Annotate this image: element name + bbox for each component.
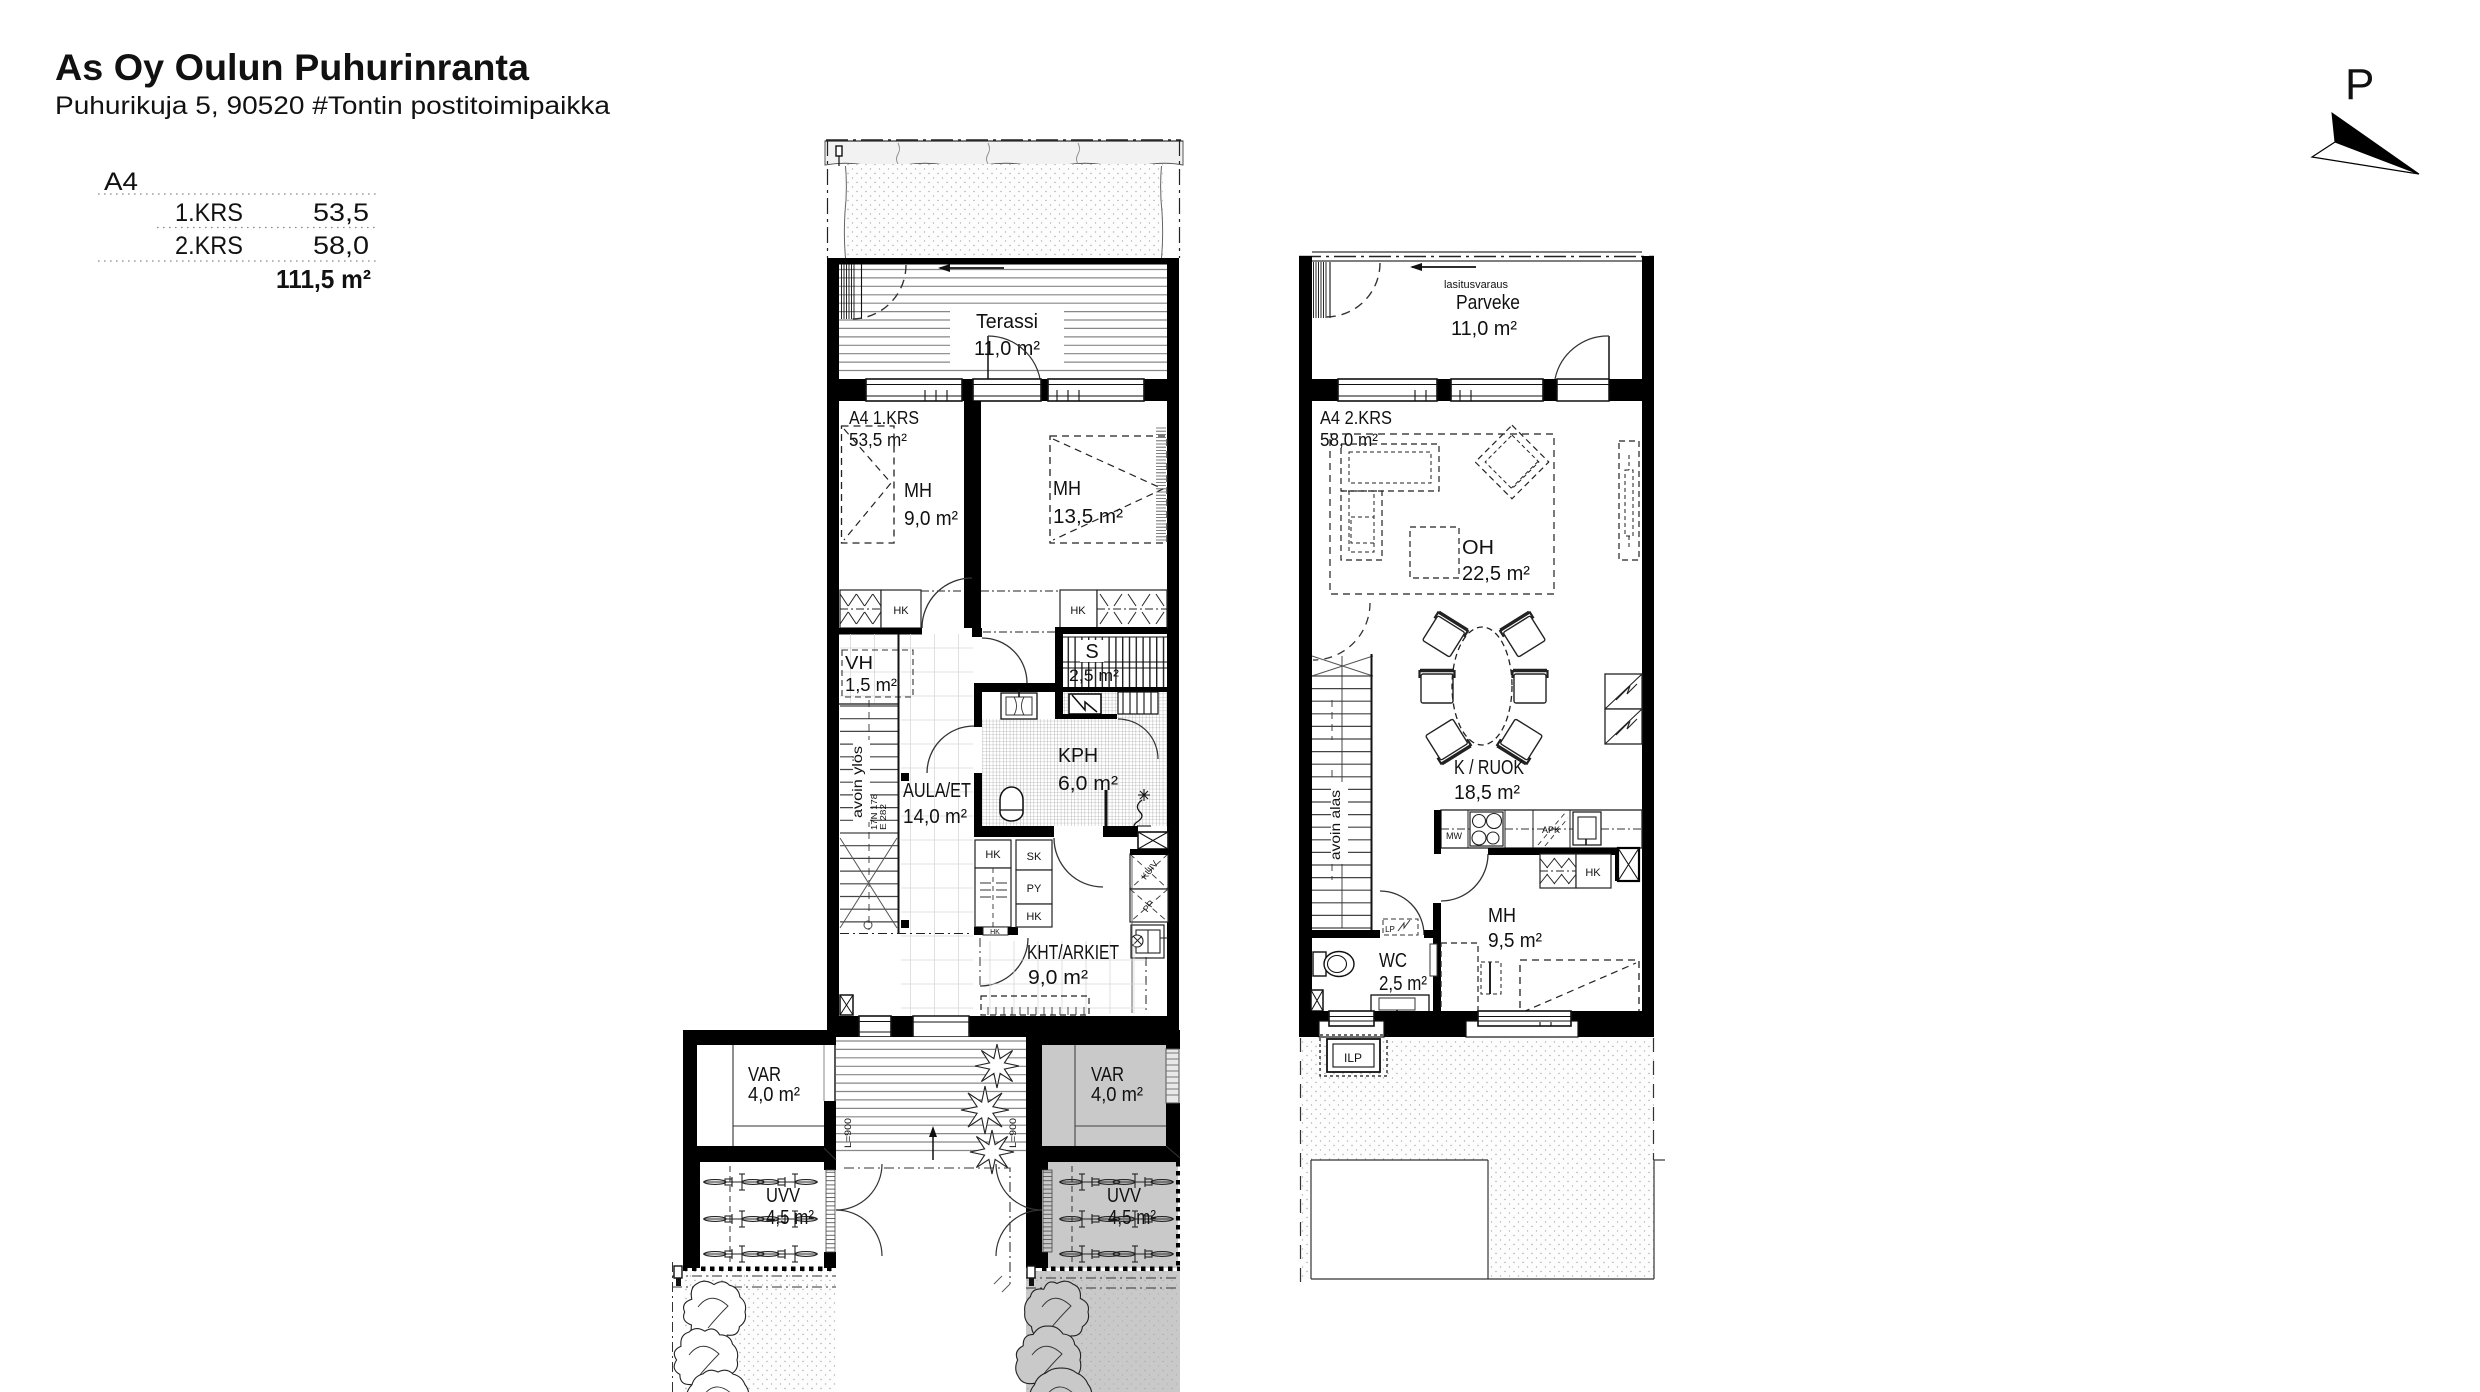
svg-text:PY: PY (1027, 883, 1042, 895)
svg-text:HK: HK (1585, 867, 1601, 879)
svg-text:13,5 m²: 13,5 m² (1053, 506, 1123, 528)
svg-text:L=900: L=900 (1008, 1118, 1018, 1148)
svg-text:2,5 m²: 2,5 m² (1379, 973, 1427, 995)
svg-text:4,5 m²: 4,5 m² (766, 1207, 814, 1229)
svg-text:1.KRS: 1.KRS (175, 199, 243, 227)
svg-text:6,0 m²: 6,0 m² (1058, 773, 1118, 795)
svg-text:LP: LP (1385, 925, 1395, 934)
svg-text:OH: OH (1462, 537, 1494, 559)
svg-text:MW: MW (1446, 831, 1462, 841)
svg-text:KPH: KPH (1058, 745, 1098, 767)
svg-text:L=900: L=900 (843, 1118, 853, 1148)
svg-text:As Oy Oulun Puhurinranta: As Oy Oulun Puhurinranta (55, 47, 529, 88)
svg-text:MH: MH (1488, 905, 1516, 927)
svg-text:18,5 m²: 18,5 m² (1454, 782, 1520, 804)
svg-text:11,0 m²: 11,0 m² (1451, 318, 1517, 340)
svg-text:Parveke: Parveke (1456, 292, 1520, 314)
svg-text:58,0 m²: 58,0 m² (1320, 430, 1378, 450)
svg-text:HK: HK (893, 605, 909, 617)
svg-text:VH: VH (845, 653, 873, 673)
svg-text:APK: APK (1542, 825, 1560, 835)
svg-text:A4 2.KRS: A4 2.KRS (1320, 408, 1392, 428)
svg-text:4,5 m²: 4,5 m² (1108, 1207, 1156, 1229)
svg-text:K / RUOK: K / RUOK (1454, 757, 1525, 779)
svg-text:E 282: E 282 (878, 804, 888, 830)
svg-text:KHT/ARKIET: KHT/ARKIET (1027, 942, 1119, 964)
svg-text:1,5 m²: 1,5 m² (845, 675, 897, 695)
svg-text:P: P (2345, 60, 2374, 109)
svg-text:HK: HK (1070, 605, 1086, 617)
svg-text:Puhurikuja 5, 90520 #Tontin po: Puhurikuja 5, 90520 #Tontin postitoimipa… (55, 92, 610, 120)
svg-text:9,0 m²: 9,0 m² (904, 508, 958, 530)
svg-text:A4: A4 (104, 168, 138, 196)
svg-text:UVV: UVV (1107, 1185, 1142, 1207)
svg-text:VAR: VAR (748, 1064, 781, 1086)
svg-text:avoin alas: avoin alas (1327, 790, 1343, 860)
svg-text:ILP: ILP (1344, 1051, 1362, 1065)
svg-text:9,5 m²: 9,5 m² (1488, 930, 1542, 952)
svg-text:AULA/ET: AULA/ET (903, 780, 971, 802)
svg-text:A4 1.KRS: A4 1.KRS (849, 408, 919, 428)
svg-text:2,5 m²: 2,5 m² (1069, 666, 1119, 685)
svg-text:Terassi: Terassi (976, 311, 1038, 333)
svg-text:4,0 m²: 4,0 m² (1091, 1084, 1143, 1106)
svg-text:58,0: 58,0 (313, 232, 369, 260)
svg-text:MH: MH (904, 480, 932, 502)
svg-text:53,5: 53,5 (313, 199, 369, 227)
svg-text:111,5 m²: 111,5 m² (276, 264, 371, 294)
svg-text:S: S (1085, 641, 1098, 663)
svg-text:SK: SK (1027, 851, 1042, 863)
svg-text:WC: WC (1379, 950, 1407, 972)
svg-text:HK: HK (985, 849, 1001, 861)
svg-text:22,5 m²: 22,5 m² (1462, 563, 1530, 585)
svg-text:VAR: VAR (1091, 1064, 1124, 1086)
svg-text:HK: HK (1026, 911, 1042, 923)
svg-text:53,5 m²: 53,5 m² (849, 430, 907, 450)
svg-text:UVV: UVV (766, 1185, 801, 1207)
svg-text:9,0 m²: 9,0 m² (1028, 967, 1088, 989)
svg-text:lasitusvaraus: lasitusvaraus (1444, 279, 1508, 291)
svg-text:14,0 m²: 14,0 m² (903, 806, 967, 828)
svg-text:MH: MH (1053, 478, 1081, 500)
svg-text:4,0 m²: 4,0 m² (748, 1084, 800, 1106)
svg-text:avoin ylös: avoin ylös (849, 746, 865, 818)
svg-text:2.KRS: 2.KRS (175, 232, 243, 260)
svg-text:HK: HK (990, 929, 1000, 936)
